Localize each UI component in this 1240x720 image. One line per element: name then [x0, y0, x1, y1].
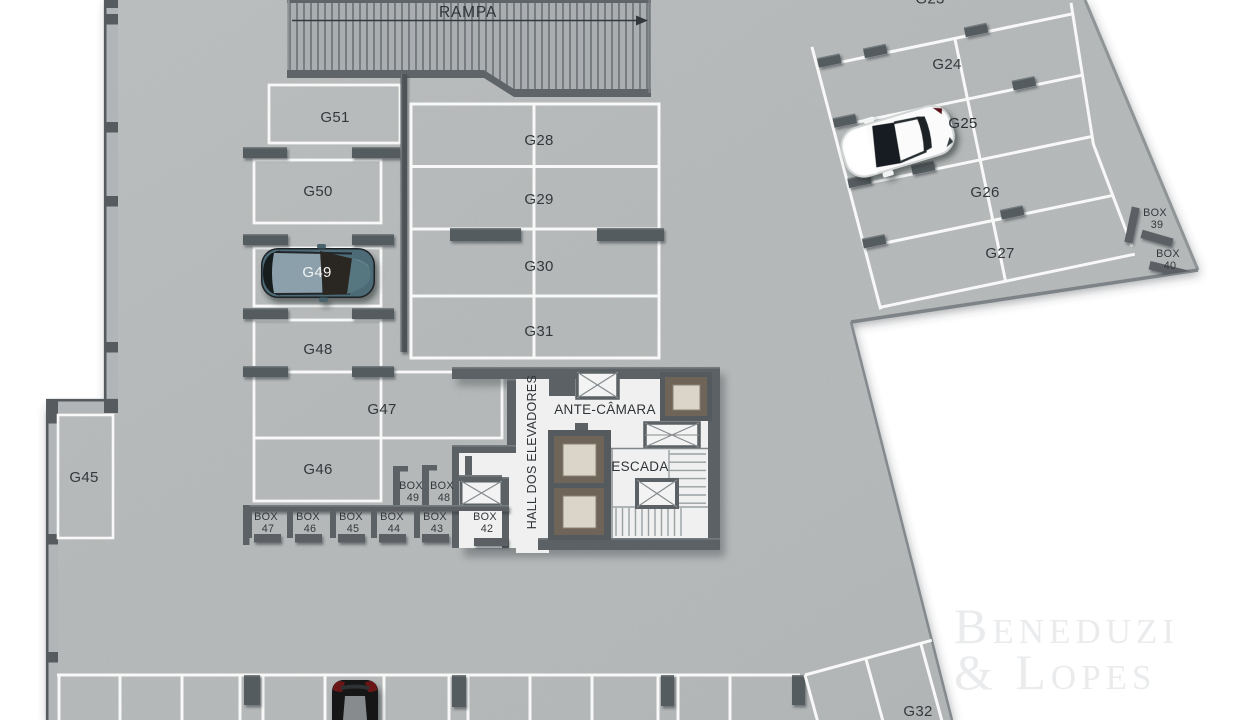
svg-text:G49: G49: [302, 264, 331, 281]
svg-text:G24: G24: [932, 56, 961, 73]
svg-text:BOX: BOX: [1143, 207, 1167, 219]
svg-text:BOX: BOX: [423, 511, 447, 523]
svg-text:BOX: BOX: [473, 511, 497, 523]
svg-text:& Lopes: & Lopes: [954, 644, 1157, 700]
svg-text:G26: G26: [970, 184, 999, 201]
svg-text:ESCADA: ESCADA: [611, 459, 668, 474]
svg-text:G25: G25: [948, 115, 977, 132]
svg-text:44: 44: [388, 523, 401, 535]
svg-text:BOX: BOX: [430, 480, 454, 492]
svg-text:BOX: BOX: [399, 480, 423, 492]
svg-text:42: 42: [481, 523, 494, 535]
svg-text:G28: G28: [524, 132, 553, 149]
svg-text:G50: G50: [303, 183, 332, 200]
svg-text:ANTE-CÂMARA: ANTE-CÂMARA: [554, 402, 656, 417]
svg-text:G48: G48: [303, 341, 332, 358]
svg-text:48: 48: [438, 492, 451, 504]
svg-text:RAMPA: RAMPA: [439, 4, 497, 21]
svg-text:G45: G45: [69, 469, 98, 486]
svg-text:G27: G27: [985, 245, 1014, 262]
svg-text:43: 43: [431, 523, 444, 535]
svg-text:39: 39: [1151, 219, 1164, 231]
svg-text:BOX: BOX: [296, 511, 320, 523]
svg-text:BOX: BOX: [339, 511, 363, 523]
svg-text:47: 47: [262, 523, 275, 535]
svg-text:G32: G32: [903, 703, 932, 720]
svg-text:G30: G30: [524, 258, 553, 275]
svg-text:G46: G46: [303, 461, 332, 478]
svg-text:G31: G31: [524, 323, 553, 340]
svg-text:G51: G51: [320, 109, 349, 126]
svg-text:BOX: BOX: [1156, 248, 1180, 260]
svg-text:45: 45: [347, 523, 360, 535]
svg-text:49: 49: [407, 492, 420, 504]
svg-text:BOX: BOX: [380, 511, 404, 523]
svg-text:G47: G47: [367, 401, 396, 418]
svg-text:G29: G29: [524, 191, 553, 208]
svg-text:HALL DOS ELEVADORES: HALL DOS ELEVADORES: [525, 375, 539, 529]
svg-text:G23: G23: [915, 0, 944, 8]
svg-text:40: 40: [1164, 260, 1177, 272]
svg-text:46: 46: [304, 523, 317, 535]
svg-text:BOX: BOX: [254, 511, 278, 523]
